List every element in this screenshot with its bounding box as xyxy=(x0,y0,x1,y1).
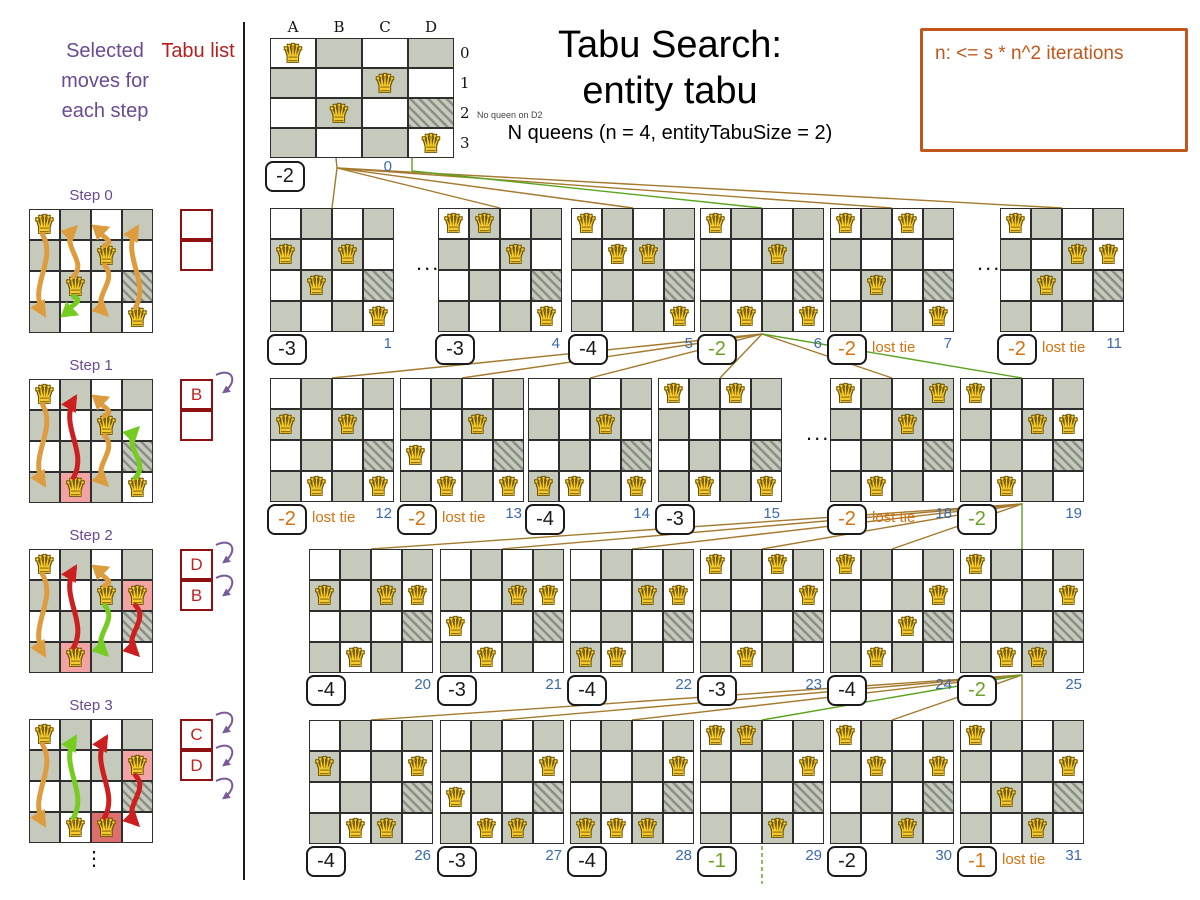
board-cell-D0 xyxy=(363,378,394,409)
board-cell-D1 xyxy=(363,409,394,440)
queen-icon: ♛ xyxy=(964,723,986,748)
tabu-cell-D2 xyxy=(923,611,954,642)
board-cell-C1: ♛ xyxy=(502,580,533,611)
step-label-3: Step 3 xyxy=(29,697,153,714)
queen-icon: ♛ xyxy=(865,474,887,499)
score-badge-28: -4 xyxy=(567,846,607,877)
tabu-cell-D2 xyxy=(363,440,394,471)
board-cell-D1 xyxy=(621,409,652,440)
board-cell-A3 xyxy=(309,813,340,844)
board-cell-B2 xyxy=(471,611,502,642)
queen-icon: ♛ xyxy=(995,645,1017,670)
queen-icon: ♛ xyxy=(865,754,887,779)
queen-icon: ♛ xyxy=(625,474,647,499)
board-cell-A1 xyxy=(830,751,861,782)
board-cell-C2 xyxy=(1022,440,1053,471)
board-index-18: 18 xyxy=(912,505,952,522)
board-cell-A3 xyxy=(700,642,731,673)
queen-icon: ♛ xyxy=(667,583,689,608)
queen-icon: ♛ xyxy=(1026,816,1048,841)
board-cell-C0 xyxy=(332,378,363,409)
queen-icon: ♛ xyxy=(927,304,949,329)
board-cell-A0: ♛ xyxy=(830,208,861,239)
queen-icon: ♛ xyxy=(927,381,949,406)
board-cell-A0 xyxy=(400,378,431,409)
board-cell-C2 xyxy=(892,782,923,813)
board-cell-A0 xyxy=(270,208,301,239)
board-cell-A2 xyxy=(309,611,340,642)
board-cell-D3: ♛ xyxy=(664,301,695,332)
board-cell-B3: ♛ xyxy=(731,301,762,332)
board-cell-C1: ♛ xyxy=(332,409,363,440)
board-cell-D0 xyxy=(923,549,954,580)
board-cell-D1: ♛ xyxy=(402,580,433,611)
tabu-cell-D2 xyxy=(793,611,824,642)
board-cell-B2 xyxy=(601,782,632,813)
board-cell-C1 xyxy=(892,751,923,782)
tabu-list-box-0-0 xyxy=(180,209,213,240)
board-cell-B1 xyxy=(301,409,332,440)
score-badge-14: -4 xyxy=(525,504,565,535)
board-cell-C3: ♛ xyxy=(371,813,402,844)
queen-icon: ♛ xyxy=(404,443,426,468)
board-cell-B2 xyxy=(559,440,590,471)
board-cell-C3: ♛ xyxy=(1022,813,1053,844)
board-cell-D0 xyxy=(1053,378,1084,409)
board-cell-A0: ♛ xyxy=(960,549,991,580)
move-arrow-C-green xyxy=(101,606,109,654)
board-cell-C2 xyxy=(1062,270,1093,301)
board-cell-D0 xyxy=(533,720,564,751)
queen-icon: ♛ xyxy=(313,754,335,779)
board-cell-A1 xyxy=(570,751,601,782)
board-cell-B3: ♛ xyxy=(301,471,332,502)
board-cell-B0: ♛ xyxy=(469,208,500,239)
board-cell-C1: ♛ xyxy=(1022,409,1053,440)
board-cell-B2: ♛ xyxy=(301,270,332,301)
queen-icon: ♛ xyxy=(274,242,296,267)
queen-icon: ♛ xyxy=(834,552,856,577)
board-cell-A0: ♛ xyxy=(700,549,731,580)
board-cell-D0 xyxy=(793,208,824,239)
board-cell-B0 xyxy=(601,549,632,580)
board-cell-A1 xyxy=(571,239,602,270)
board-cell-A0 xyxy=(440,720,471,751)
queen-icon: ♛ xyxy=(506,816,528,841)
board-cell-C0 xyxy=(1062,208,1093,239)
board-cell-C2 xyxy=(1022,782,1053,813)
move-board-5: ♛♛♛♛ xyxy=(571,208,695,332)
board-cell-A1: ♛ xyxy=(270,239,301,270)
score-badge-23: -3 xyxy=(697,675,737,706)
board-cell-B0 xyxy=(731,549,762,580)
board-cell-C3 xyxy=(500,301,531,332)
board-cell-B3: ♛ xyxy=(601,813,632,844)
queen-icon: ♛ xyxy=(865,645,887,670)
board-cell-B3 xyxy=(861,813,892,844)
iterations-note-box: n: <= s * n^2 iterations xyxy=(920,28,1188,152)
board-cell-B1: ♛ xyxy=(602,239,633,270)
board-cell-C0 xyxy=(892,549,923,580)
board-cell-B0 xyxy=(601,720,632,751)
move-arrow-B-green xyxy=(70,739,78,818)
no-queen-annotation: No queen on D2 xyxy=(477,110,543,120)
tabu-cell-D2 xyxy=(1093,270,1124,301)
board-cell-A2 xyxy=(309,782,340,813)
board-cell-C3 xyxy=(462,471,493,502)
board-cell-A3 xyxy=(960,471,991,502)
queen-icon: ♛ xyxy=(735,304,757,329)
board-cell-A2: ♛ xyxy=(440,782,471,813)
board-cell-C2 xyxy=(892,270,923,301)
board-index-27: 27 xyxy=(522,847,562,864)
score-badge-27: -3 xyxy=(437,846,477,877)
board-cell-A0: ♛ xyxy=(700,720,731,751)
iterations-note-text: n: <= s * n^2 iterations xyxy=(935,43,1123,64)
board-cell-D1: ♛ xyxy=(793,751,824,782)
board-cell-B0 xyxy=(301,378,332,409)
board-cell-C1 xyxy=(762,751,793,782)
board-cell-C3: ♛ xyxy=(892,813,923,844)
lost-tie-label: lost tie xyxy=(442,509,485,526)
board-cell-C0 xyxy=(502,720,533,751)
board-cell-B2: ♛ xyxy=(316,98,362,128)
queen-icon: ♛ xyxy=(964,552,986,577)
move-board-27: ♛♛♛♛ xyxy=(440,720,564,844)
queen-icon: ♛ xyxy=(282,41,304,66)
board-cell-D0 xyxy=(663,549,694,580)
board-cell-D1 xyxy=(664,239,695,270)
board-cell-A2: ♛ xyxy=(440,611,471,642)
board-cell-A1: ♛ xyxy=(309,580,340,611)
queen-icon: ♛ xyxy=(1004,211,1026,236)
board-cell-B2 xyxy=(689,440,720,471)
queen-icon: ♛ xyxy=(766,242,788,267)
board-cell-B2 xyxy=(469,270,500,301)
board-cell-B3 xyxy=(991,813,1022,844)
queen-icon: ♛ xyxy=(435,474,457,499)
board-cell-D3 xyxy=(533,813,564,844)
move-board-30: ♛♛♛♛ xyxy=(830,720,954,844)
board-cell-B1 xyxy=(861,409,892,440)
board-cell-B0 xyxy=(559,378,590,409)
board-cell-A0: ♛ xyxy=(700,208,731,239)
tabu-list-header: Tabu list xyxy=(158,36,238,66)
queen-icon: ♛ xyxy=(693,474,715,499)
score-badge-11: -2 xyxy=(997,334,1037,365)
board-cell-A0 xyxy=(528,378,559,409)
lost-tie-label: lost tie xyxy=(872,339,915,356)
board-cell-B0 xyxy=(602,208,633,239)
board-index-15: 15 xyxy=(740,505,780,522)
board-cell-A1 xyxy=(658,409,689,440)
queen-icon: ♛ xyxy=(1057,754,1079,779)
board-cell-C0 xyxy=(892,720,923,751)
board-cell-B0 xyxy=(991,378,1022,409)
column-label-B: B xyxy=(316,18,362,36)
board-cell-B3: ♛ xyxy=(861,642,892,673)
board-cell-C2 xyxy=(371,782,402,813)
board-cell-D1 xyxy=(751,409,782,440)
board-cell-B1 xyxy=(559,409,590,440)
queen-icon: ♛ xyxy=(444,785,466,810)
queen-icon: ♛ xyxy=(1035,273,1057,298)
board-index-1: 1 xyxy=(352,335,392,352)
move-board-13: ♛♛♛♛ xyxy=(400,378,524,502)
board-cell-B2: ♛ xyxy=(861,270,892,301)
board-cell-C0 xyxy=(892,378,923,409)
queen-icon: ♛ xyxy=(995,785,1017,810)
board-cell-A0: ♛ xyxy=(658,378,689,409)
score-badge-1: -3 xyxy=(267,334,307,365)
board-cell-D1 xyxy=(363,239,394,270)
board-cell-B2 xyxy=(340,611,371,642)
board-cell-A2 xyxy=(270,440,301,471)
board-index-4: 4 xyxy=(520,335,560,352)
board-cell-D3: ♛ xyxy=(408,128,454,158)
tabu-shift-arrows-3 xyxy=(212,705,252,845)
board-cell-D0 xyxy=(533,549,564,580)
board-cell-A3 xyxy=(270,471,301,502)
title-block: Tabu Search: entity tabu N queens (n = 4… xyxy=(470,22,870,145)
board-cell-D3: ♛ xyxy=(751,471,782,502)
board-cell-A1 xyxy=(700,751,731,782)
board-index-23: 23 xyxy=(782,676,822,693)
selected-moves-header: Selected moves for each step xyxy=(42,36,168,126)
board-cell-D1: ♛ xyxy=(533,751,564,782)
board-cell-C3: ♛ xyxy=(632,813,663,844)
board-cell-D0 xyxy=(363,208,394,239)
step-label-1: Step 1 xyxy=(29,357,153,374)
board-cell-B3: ♛ xyxy=(601,642,632,673)
board-cell-D1: ♛ xyxy=(1093,239,1124,270)
queen-icon: ♛ xyxy=(305,474,327,499)
board-cell-B0 xyxy=(861,378,892,409)
tabu-cell-D2 xyxy=(531,270,562,301)
move-board-15: ♛♛♛♛ xyxy=(658,378,782,502)
queen-icon: ♛ xyxy=(605,645,627,670)
tabu-cell-D2 xyxy=(533,782,564,813)
board-cell-C2 xyxy=(762,782,793,813)
board-cell-D1 xyxy=(493,409,524,440)
board-index-21: 21 xyxy=(522,676,562,693)
queen-icon: ♛ xyxy=(532,474,554,499)
board-index-19: 19 xyxy=(1042,505,1082,522)
board-cell-B1 xyxy=(469,239,500,270)
tabu-cell-D2 xyxy=(493,440,524,471)
board-cell-C3 xyxy=(332,471,363,502)
board-cell-C3 xyxy=(762,301,793,332)
board-cell-D3 xyxy=(923,642,954,673)
score-badge-7: -2 xyxy=(827,334,867,365)
board-cell-A2 xyxy=(960,782,991,813)
board-cell-A3 xyxy=(830,813,861,844)
score-badge-21: -3 xyxy=(437,675,477,706)
board-cell-A1 xyxy=(270,68,316,98)
board-cell-C1 xyxy=(502,751,533,782)
queen-icon: ♛ xyxy=(724,381,746,406)
board-cell-A2 xyxy=(528,440,559,471)
board-cell-D0 xyxy=(1053,720,1084,751)
board-cell-C1: ♛ xyxy=(762,239,793,270)
board-cell-A1 xyxy=(830,409,861,440)
queen-icon: ♛ xyxy=(735,645,757,670)
queen-icon: ♛ xyxy=(636,583,658,608)
board-cell-D1: ♛ xyxy=(663,751,694,782)
board-cell-B1 xyxy=(731,580,762,611)
move-board-28: ♛♛♛♛ xyxy=(570,720,694,844)
board-cell-D0 xyxy=(664,208,695,239)
board-cell-C2 xyxy=(632,782,663,813)
board-cell-C3: ♛ xyxy=(1022,642,1053,673)
board-index-24: 24 xyxy=(912,676,952,693)
queen-icon: ♛ xyxy=(305,273,327,298)
tabu-list-box-2-1: B xyxy=(180,580,213,611)
queen-icon: ♛ xyxy=(274,412,296,437)
board-cell-B1 xyxy=(431,409,462,440)
queen-icon: ♛ xyxy=(535,304,557,329)
board-cell-C3 xyxy=(590,471,621,502)
board-cell-B3 xyxy=(316,128,362,158)
move-arrow-C-orange xyxy=(101,569,109,586)
score-badge-13: -2 xyxy=(397,504,437,535)
tabu-list-box-1-1 xyxy=(180,410,213,441)
board-cell-D1: ♛ xyxy=(663,580,694,611)
board-cell-C3 xyxy=(720,471,751,502)
board-cell-C0 xyxy=(371,549,402,580)
board-cell-B1 xyxy=(601,751,632,782)
board-cell-A2 xyxy=(830,270,861,301)
board-cell-A2 xyxy=(700,782,731,813)
tabu-shift-arrow-icon xyxy=(216,576,232,595)
board-cell-A3 xyxy=(830,471,861,502)
board-cell-A0: ♛ xyxy=(1000,208,1031,239)
queen-icon: ♛ xyxy=(375,583,397,608)
board-cell-C0: ♛ xyxy=(720,378,751,409)
board-cell-C1: ♛ xyxy=(892,409,923,440)
board-cell-A3 xyxy=(960,642,991,673)
board-cell-C3 xyxy=(892,301,923,332)
board-cell-C2 xyxy=(332,270,363,301)
tabu-cell-D2 xyxy=(793,782,824,813)
board-cell-A3 xyxy=(440,813,471,844)
board-cell-B1 xyxy=(731,751,762,782)
board-cell-A2 xyxy=(830,440,861,471)
board-cell-A3 xyxy=(400,471,431,502)
board-index-30: 30 xyxy=(912,847,952,864)
queen-icon: ♛ xyxy=(1026,645,1048,670)
board-cell-B1: ♛ xyxy=(861,751,892,782)
board-cell-B1 xyxy=(991,580,1022,611)
queen-icon: ♛ xyxy=(497,474,519,499)
board-cell-D3 xyxy=(533,642,564,673)
queen-icon: ♛ xyxy=(667,754,689,779)
board-cell-D0 xyxy=(923,720,954,751)
board-cell-B2 xyxy=(861,782,892,813)
queen-icon: ♛ xyxy=(475,816,497,841)
board-cell-C0 xyxy=(633,208,664,239)
queen-icon: ♛ xyxy=(336,412,358,437)
board-cell-B0 xyxy=(340,549,371,580)
queen-icon: ♛ xyxy=(575,211,597,236)
board-index-5: 5 xyxy=(653,335,693,352)
board-cell-B1 xyxy=(1031,239,1062,270)
board-cell-D1: ♛ xyxy=(533,580,564,611)
board-cell-B1 xyxy=(601,580,632,611)
board-cell-C3 xyxy=(371,642,402,673)
board-cell-A2: ♛ xyxy=(400,440,431,471)
step-arrows-3 xyxy=(29,719,153,843)
board-cell-C2 xyxy=(590,440,621,471)
board-cell-B2 xyxy=(991,440,1022,471)
board-cell-C0 xyxy=(632,549,663,580)
board-cell-A1 xyxy=(440,580,471,611)
board-cell-B2 xyxy=(731,270,762,301)
row-label-1: 1 xyxy=(460,74,482,92)
board-cell-A1 xyxy=(1000,239,1031,270)
queen-icon: ♛ xyxy=(704,552,726,577)
tabu-cell-D2 xyxy=(408,98,454,128)
queen-icon: ♛ xyxy=(927,583,949,608)
queen-icon: ♛ xyxy=(755,474,777,499)
start-board: ♛♛♛♛ xyxy=(270,38,454,158)
board-cell-C3 xyxy=(892,471,923,502)
board-cell-B3: ♛ xyxy=(431,471,462,502)
board-cell-B0 xyxy=(991,549,1022,580)
tabu-cell-D2 xyxy=(1053,782,1084,813)
board-index-12: 12 xyxy=(352,505,392,522)
move-arrow-A-orange xyxy=(39,575,47,654)
board-cell-A0 xyxy=(440,549,471,580)
board-cell-B0 xyxy=(689,378,720,409)
board-index-29: 29 xyxy=(782,847,822,864)
step-label-0: Step 0 xyxy=(29,187,153,204)
tabu-cell-D2 xyxy=(793,270,824,301)
move-board-23: ♛♛♛♛ xyxy=(700,549,824,673)
board-cell-A2 xyxy=(570,782,601,813)
steps-continue-ellipsis: ⋮ xyxy=(84,846,104,871)
board-cell-A2 xyxy=(571,270,602,301)
score-badge-19: -2 xyxy=(957,504,997,535)
queen-icon: ♛ xyxy=(1057,583,1079,608)
queen-icon: ♛ xyxy=(1066,242,1088,267)
score-badge-24: -4 xyxy=(827,675,867,706)
board-cell-A1: ♛ xyxy=(309,751,340,782)
board-cell-A2 xyxy=(830,782,861,813)
board-cell-D3 xyxy=(923,813,954,844)
board-cell-A1 xyxy=(570,580,601,611)
board-cell-D3 xyxy=(793,642,824,673)
board-cell-A1 xyxy=(700,580,731,611)
board-cell-C0: ♛ xyxy=(892,208,923,239)
tabu-cell-D2 xyxy=(621,440,652,471)
board-cell-B3: ♛ xyxy=(991,642,1022,673)
queen-icon: ♛ xyxy=(420,131,442,156)
board-cell-A3 xyxy=(438,301,469,332)
start-board-score: -2 xyxy=(265,161,305,192)
board-cell-A3 xyxy=(700,301,731,332)
board-cell-D0 xyxy=(408,38,454,68)
board-cell-C1: ♛ xyxy=(462,409,493,440)
board-cell-B0 xyxy=(991,720,1022,751)
move-board-18: ♛♛♛♛ xyxy=(830,378,954,502)
board-index-20: 20 xyxy=(391,676,431,693)
board-cell-A0 xyxy=(309,720,340,751)
queen-icon: ♛ xyxy=(442,211,464,236)
queen-icon: ♛ xyxy=(662,381,684,406)
board-cell-B0 xyxy=(316,38,362,68)
tabu-list-box-3-0: C xyxy=(180,719,213,750)
